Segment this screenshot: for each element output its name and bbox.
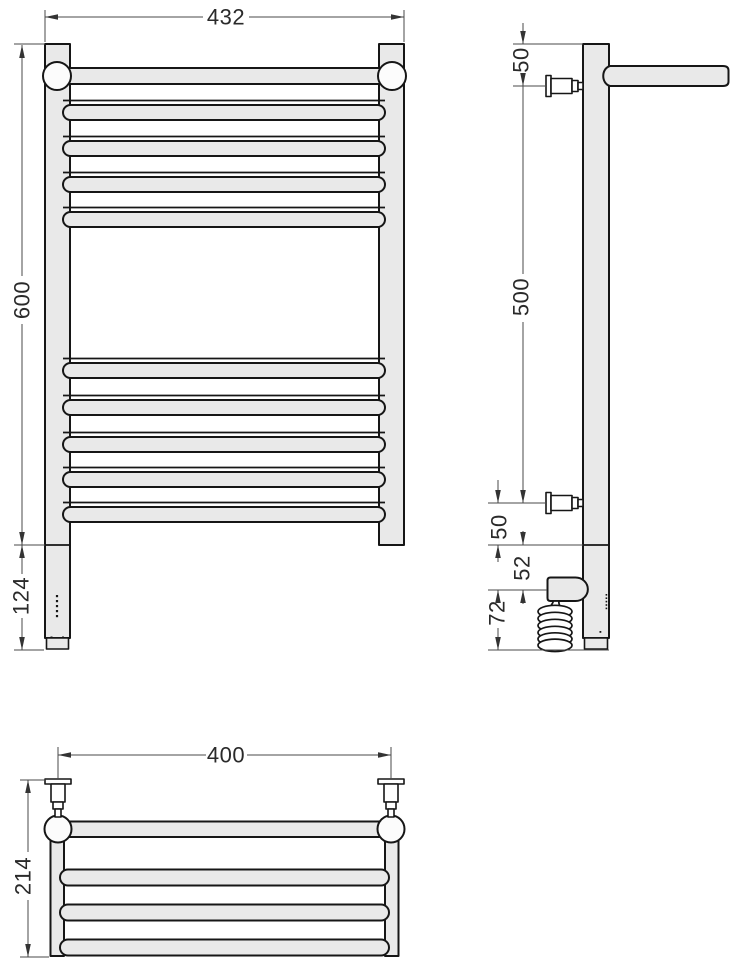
technical-drawing-page: 432 600 124: [0, 0, 738, 970]
front-width-label: 432: [207, 5, 245, 30]
towel-bar: [63, 400, 385, 415]
top-cross-bar: [60, 940, 389, 956]
towel-bar: [63, 105, 385, 120]
front-lower-section-label: 124: [9, 577, 34, 615]
side-top-offset-label: 50: [509, 47, 534, 72]
top-depth-label: 214: [11, 857, 36, 895]
top-depth-dimension: 214: [11, 780, 50, 957]
side-post: [583, 44, 609, 638]
side-post-end-cap: [585, 638, 608, 649]
front-lower-section-dimension: 124: [9, 545, 45, 650]
side-heater-zone-dimension: 72: [485, 590, 510, 650]
towel-bar: [63, 212, 385, 227]
lower-wall-bracket: [546, 493, 583, 514]
front-view: 432 600 124: [9, 5, 407, 651]
bracket-body: [551, 496, 572, 511]
bracket-nut: [572, 498, 578, 509]
towel-bar: [63, 141, 385, 156]
towel-bar: [63, 177, 385, 192]
front-right-ball-joint: [378, 62, 406, 90]
bracket-body: [51, 784, 65, 802]
front-left-ball-joint: [43, 62, 71, 90]
top-left-post-top: [45, 816, 72, 843]
towel-bar: [63, 507, 385, 522]
side-box-offset-label: 52: [510, 555, 535, 580]
bracket-stem: [388, 809, 394, 817]
top-rear-bar: [58, 822, 391, 838]
top-right-post-top: [378, 816, 405, 843]
bracket-body: [384, 784, 398, 802]
bracket-stem: [578, 500, 583, 507]
towel-rail-drawing: 432 600 124: [0, 0, 738, 970]
side-bracket-span-dimension: 500: [509, 278, 534, 503]
top-left-arm: [51, 829, 65, 956]
top-cross-bar: [60, 870, 389, 886]
bracket-nut: [53, 802, 63, 809]
towel-bar: [63, 363, 385, 378]
top-view: 400 214: [11, 743, 405, 958]
top-width-label: 400: [207, 743, 245, 768]
heater-control-box: [548, 578, 588, 602]
side-lower-offset-label: 50: [487, 514, 512, 539]
bracket-nut: [386, 802, 396, 809]
side-top-offset-dimension: 50: [509, 23, 534, 274]
side-shelf-arm: [603, 66, 728, 86]
side-box-offset-dimension: 52: [510, 531, 535, 604]
side-bracket-span-label: 500: [509, 278, 534, 316]
towel-bar: [63, 437, 385, 452]
top-cross-bar: [60, 905, 389, 921]
side-heater-zone-label: 72: [485, 600, 510, 625]
side-view: 50 500 50 52 7: [485, 23, 729, 652]
front-height-label: 600: [10, 281, 35, 319]
towel-bar: [63, 472, 385, 487]
top-right-wall-bracket: [378, 779, 404, 817]
front-upper-bar-group: [63, 101, 385, 228]
front-top-shelf-bar: [57, 68, 392, 84]
side-lower-offset-dimension: 50: [487, 480, 512, 562]
bracket-body: [551, 79, 572, 94]
front-left-post: [45, 44, 70, 638]
top-right-arm: [385, 829, 399, 956]
upper-wall-bracket: [546, 76, 583, 97]
bracket-stem: [55, 809, 61, 817]
top-width-dimension: 400: [58, 743, 391, 780]
coiled-power-cable: [538, 601, 572, 652]
front-height-dimension: 600: [10, 44, 46, 545]
front-width-dimension: 432: [45, 5, 404, 43]
bracket-nut: [572, 81, 578, 92]
front-lower-bar-group: [63, 359, 385, 523]
top-left-wall-bracket: [45, 779, 71, 817]
bracket-stem: [578, 83, 583, 90]
front-left-post-end-cap: [47, 638, 69, 649]
